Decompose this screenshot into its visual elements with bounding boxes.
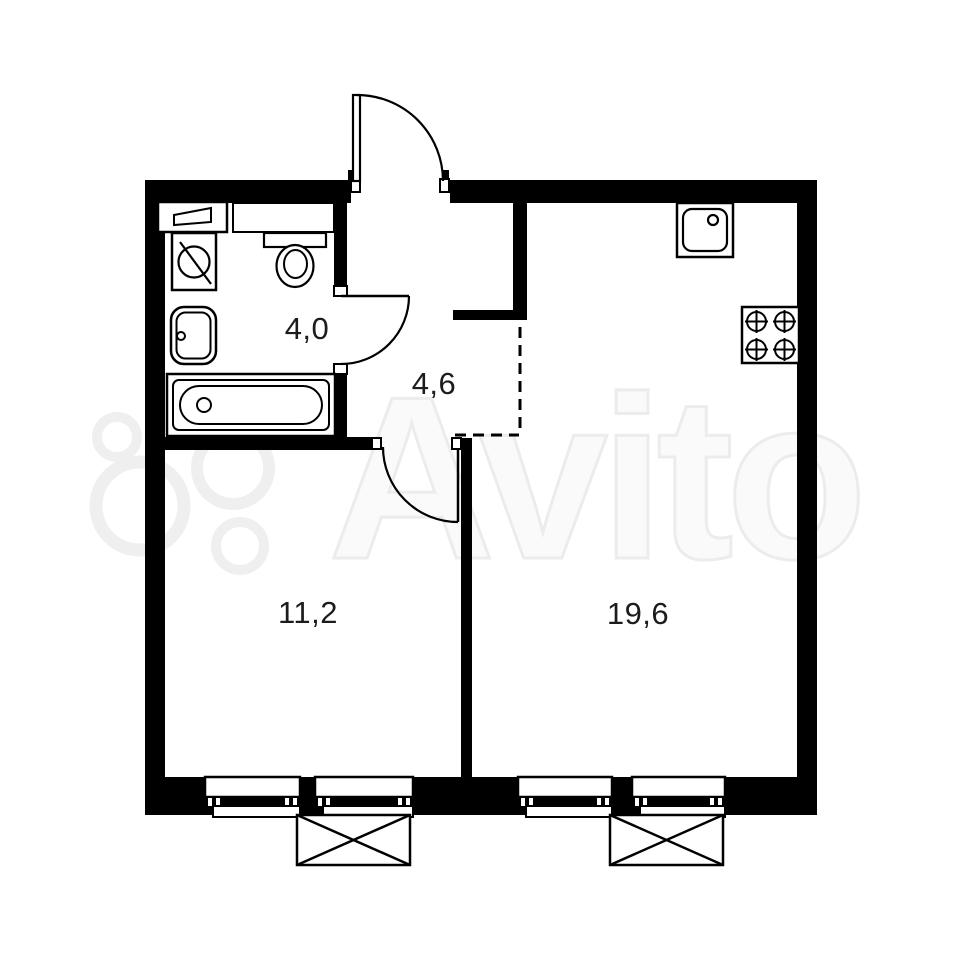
drain-icon [708,215,718,225]
door-jamb [452,438,461,449]
window [632,777,725,817]
door-swing-arc [357,95,443,181]
bathroom-door [333,286,409,374]
bathtub-icon [167,374,335,436]
area-label-room: 11,2 [278,595,338,631]
door-swing-arc [341,296,409,364]
door-swing-arc [383,447,458,522]
floor-plan [0,0,960,960]
outer-walls [145,180,817,815]
door-jamb [372,438,381,449]
room-door [372,438,461,522]
bathroom-shelf-icon [158,202,227,232]
ac-unit-box-icon [610,815,723,865]
ac-unit-box-icon [297,815,410,865]
entrance-door [348,95,450,205]
window [518,777,612,817]
vanity-counter [233,203,334,232]
drain-icon [197,398,211,412]
faucet-icon [177,332,185,340]
washing-machine-icon [172,233,216,290]
floor-plan-image: Avito [0,0,960,960]
toilet-icon [264,233,326,287]
window [315,777,413,817]
window [205,777,300,817]
kitchen-sink-icon [677,203,733,257]
door-jamb [334,364,347,374]
bathroom-sink-icon [171,307,216,364]
area-label-kitchen-living: 19,6 [607,596,669,632]
stove-icon [742,307,799,363]
area-label-hallway: 4,6 [412,366,457,402]
dashed-zone-boundary [455,327,520,435]
door-jamb [440,179,449,192]
area-label-bathroom: 4,0 [285,311,330,347]
door-jamb [334,286,347,296]
door-leaf [353,95,360,181]
